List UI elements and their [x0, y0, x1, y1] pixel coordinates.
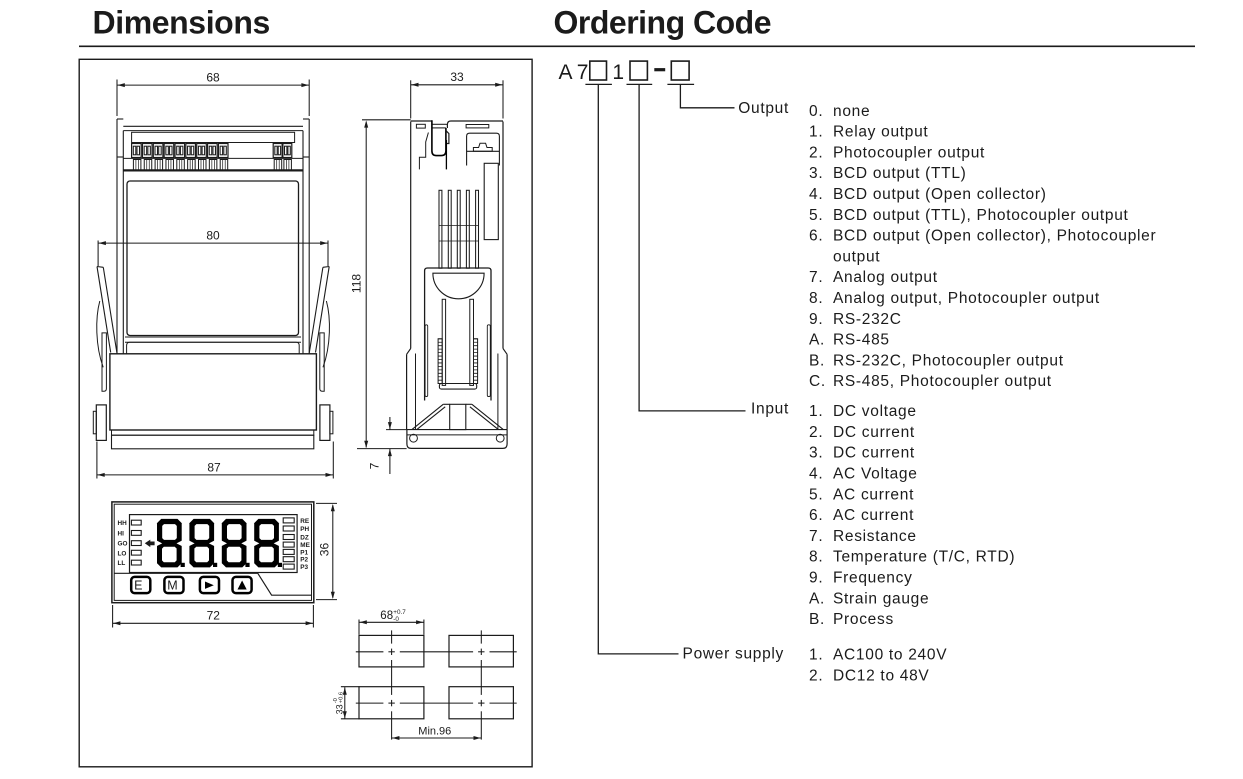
svg-text:RS-485: RS-485	[833, 332, 890, 349]
svg-text:1.: 1.	[809, 124, 823, 141]
svg-text:Input: Input	[751, 401, 789, 418]
svg-text:68: 68	[380, 610, 393, 622]
svg-text:Relay output: Relay output	[833, 124, 928, 141]
svg-text:P2: P2	[300, 557, 308, 564]
svg-text:RS-232C, Photocoupler output: RS-232C, Photocoupler output	[833, 352, 1064, 369]
svg-text:AC Voltage: AC Voltage	[833, 466, 918, 483]
svg-text:87: 87	[207, 460, 221, 474]
svg-text:RE: RE	[300, 518, 310, 525]
svg-text:Min.96: Min.96	[418, 725, 451, 737]
svg-text:3.: 3.	[809, 445, 823, 462]
svg-text:Photocoupler output: Photocoupler output	[833, 144, 985, 161]
svg-text:9.: 9.	[809, 311, 823, 328]
svg-text:2.: 2.	[809, 668, 823, 685]
svg-text:8.: 8.	[809, 290, 823, 307]
svg-text:PH: PH	[300, 526, 309, 533]
svg-text:BCD output (TTL), Photocoupler: BCD output (TTL), Photocoupler output	[833, 207, 1129, 224]
svg-text:GO: GO	[118, 541, 128, 548]
svg-text:RS-485, Photocoupler output: RS-485, Photocoupler output	[833, 373, 1052, 390]
svg-text:M: M	[167, 579, 177, 593]
svg-text:A.: A.	[809, 332, 825, 349]
svg-text:Analog output, Photocoupler ou: Analog output, Photocoupler output	[833, 290, 1100, 307]
svg-text:33: 33	[335, 704, 345, 714]
svg-text:+0.6: +0.6	[339, 692, 345, 703]
svg-text:2.: 2.	[809, 424, 823, 441]
svg-text:LL: LL	[118, 560, 126, 567]
svg-text:P3: P3	[300, 564, 308, 571]
svg-text:-0: -0	[393, 616, 399, 623]
svg-text:BCD output (Open collector): BCD output (Open collector)	[833, 186, 1047, 203]
svg-text:1: 1	[612, 61, 624, 84]
svg-text:Output: Output	[738, 100, 789, 117]
svg-text:0.: 0.	[809, 103, 823, 120]
svg-text:none: none	[833, 103, 870, 120]
svg-text:HI: HI	[118, 531, 125, 538]
svg-text:B.: B.	[809, 611, 825, 628]
svg-text:4.: 4.	[809, 186, 823, 203]
svg-text:Frequency: Frequency	[833, 570, 913, 587]
svg-text:68: 68	[206, 70, 220, 84]
svg-text:Process: Process	[833, 611, 894, 628]
svg-text:80: 80	[206, 228, 220, 242]
svg-text:AC current: AC current	[833, 486, 914, 503]
svg-text:3.: 3.	[809, 165, 823, 182]
svg-text:AC100 to 240V: AC100 to 240V	[833, 646, 947, 663]
svg-text:9.: 9.	[809, 570, 823, 587]
svg-text:output: output	[833, 248, 880, 265]
svg-text:Resistance: Resistance	[833, 528, 917, 545]
svg-text:4.: 4.	[809, 466, 823, 483]
svg-text:RS-232C: RS-232C	[833, 311, 902, 328]
svg-text:6.: 6.	[809, 228, 823, 245]
svg-text:A 7: A 7	[559, 61, 589, 84]
svg-text:DC current: DC current	[833, 424, 915, 441]
svg-text:P1: P1	[300, 549, 308, 556]
svg-text:33: 33	[450, 70, 464, 84]
svg-text:AC current: AC current	[833, 507, 914, 524]
svg-text:HH: HH	[118, 520, 128, 527]
svg-text:1.: 1.	[809, 646, 823, 663]
svg-text:Temperature (T/C, RTD): Temperature (T/C, RTD)	[833, 549, 1015, 566]
svg-text:E: E	[134, 579, 142, 593]
svg-text:DC12 to 48V: DC12 to 48V	[833, 668, 929, 685]
svg-text:7: 7	[368, 462, 382, 469]
svg-text:DC current: DC current	[833, 445, 915, 462]
svg-text:LO: LO	[118, 550, 127, 557]
svg-text:72: 72	[207, 609, 221, 623]
svg-text:BCD output (TTL): BCD output (TTL)	[833, 165, 967, 182]
svg-text:2.: 2.	[809, 144, 823, 161]
svg-text:5.: 5.	[809, 486, 823, 503]
svg-text:1.: 1.	[809, 403, 823, 420]
svg-text:Ordering Code: Ordering Code	[554, 4, 772, 40]
svg-text:7.: 7.	[809, 269, 823, 286]
svg-text:DC voltage: DC voltage	[833, 403, 917, 420]
svg-text:118: 118	[349, 274, 363, 293]
svg-text:BCD output (Open collector), P: BCD output (Open collector), Photocouple…	[833, 228, 1156, 245]
svg-text:6.: 6.	[809, 507, 823, 524]
svg-text:DZ: DZ	[300, 535, 309, 542]
svg-text:B.: B.	[809, 352, 825, 369]
svg-text:5.: 5.	[809, 207, 823, 224]
svg-text:C.: C.	[809, 373, 826, 390]
svg-text:36: 36	[318, 543, 332, 557]
svg-text:7.: 7.	[809, 528, 823, 545]
svg-text:Dimensions: Dimensions	[93, 4, 270, 40]
svg-text:8.: 8.	[809, 549, 823, 566]
svg-text:Power supply: Power supply	[683, 646, 784, 663]
svg-text:ME: ME	[300, 542, 310, 549]
svg-text:Analog output: Analog output	[833, 269, 938, 286]
svg-text:Strain gauge: Strain gauge	[833, 590, 929, 607]
svg-text:A.: A.	[809, 590, 825, 607]
